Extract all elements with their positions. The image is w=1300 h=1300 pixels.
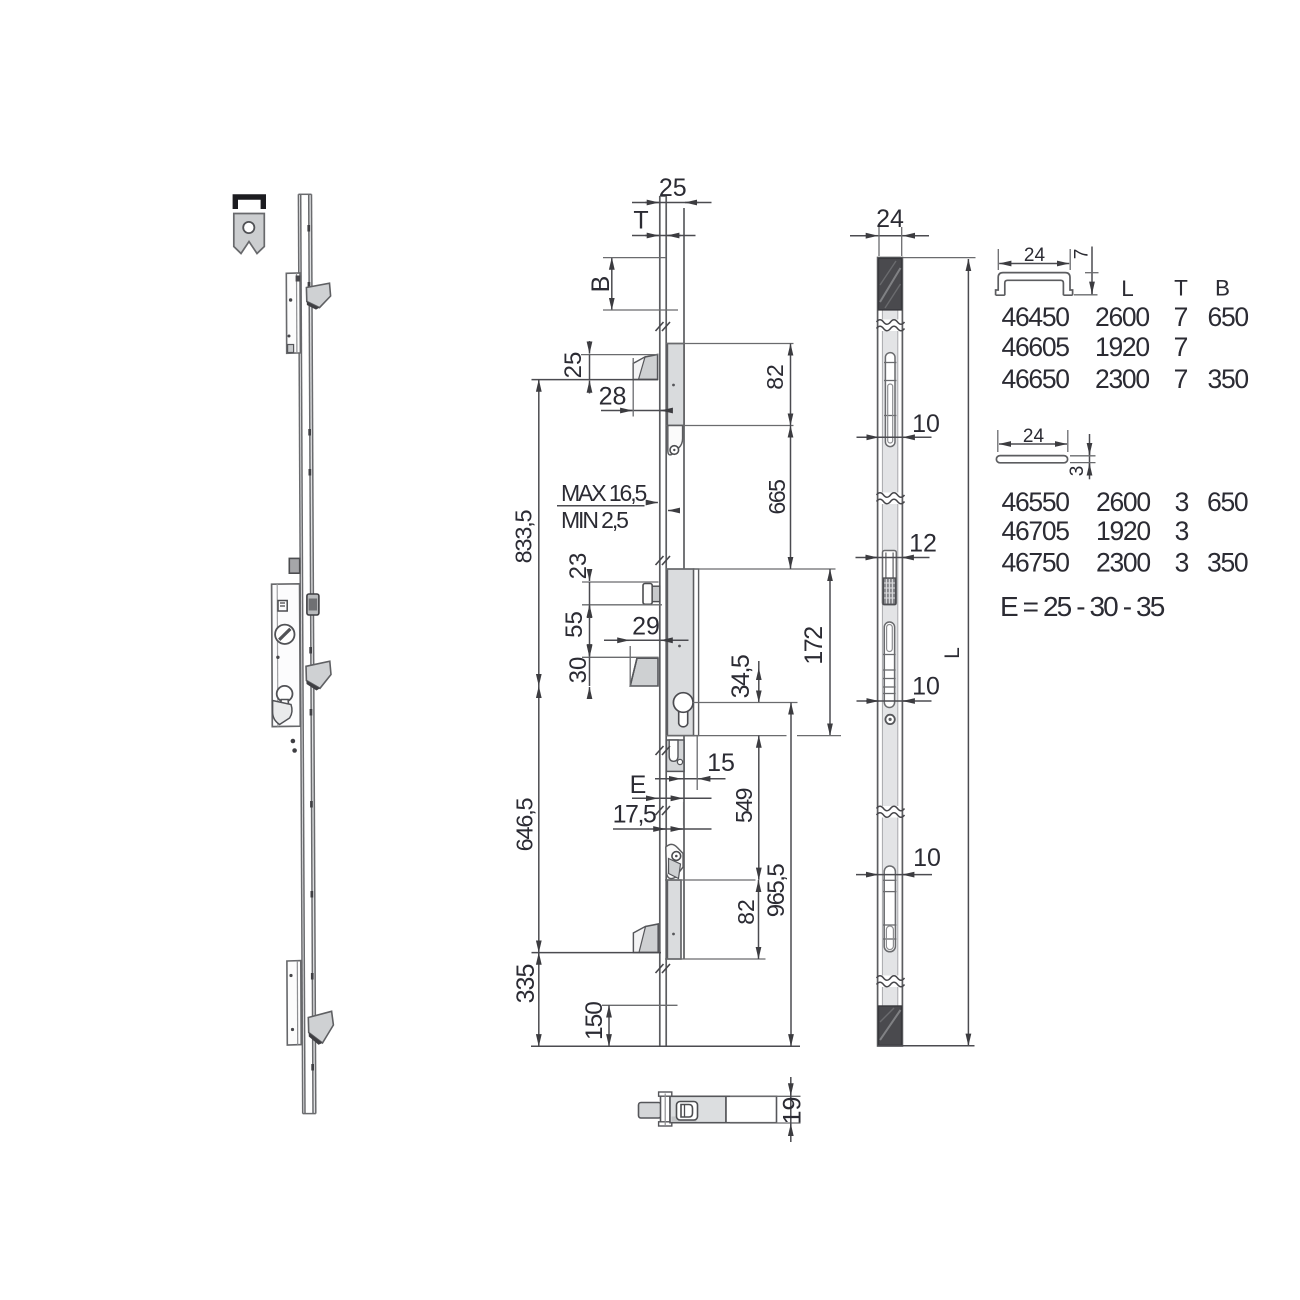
svg-text:965,5: 965,5	[763, 864, 790, 918]
svg-text:650: 650	[1207, 487, 1248, 517]
svg-text:46450: 46450	[1002, 302, 1070, 332]
svg-text:646,5: 646,5	[512, 797, 538, 851]
svg-text:549: 549	[731, 788, 757, 823]
svg-text:7: 7	[1174, 302, 1189, 332]
svg-text:82: 82	[762, 364, 788, 390]
svg-text:7: 7	[1174, 332, 1189, 362]
svg-text:46550: 46550	[1002, 487, 1070, 517]
svg-text:2600: 2600	[1095, 302, 1149, 332]
svg-text:150: 150	[581, 1002, 608, 1040]
svg-text:3: 3	[1175, 547, 1190, 577]
svg-text:172: 172	[800, 627, 828, 665]
svg-text:T: T	[633, 207, 648, 235]
svg-text:3: 3	[1067, 466, 1088, 477]
svg-text:46750: 46750	[1002, 547, 1070, 577]
svg-text:28: 28	[599, 383, 627, 411]
svg-text:25: 25	[560, 352, 587, 379]
svg-text:46605: 46605	[1002, 332, 1070, 362]
svg-text:10: 10	[912, 410, 940, 438]
svg-text:350: 350	[1207, 547, 1248, 577]
svg-text:335: 335	[512, 965, 540, 1004]
svg-text:2600: 2600	[1096, 487, 1150, 517]
svg-text:24: 24	[876, 205, 904, 233]
svg-text:25: 25	[659, 174, 687, 202]
svg-text:L: L	[941, 647, 964, 659]
svg-text:E: E	[630, 771, 647, 799]
svg-text:19: 19	[779, 1097, 807, 1125]
svg-text:10: 10	[913, 844, 941, 872]
svg-text:3: 3	[1175, 516, 1190, 546]
svg-text:833,5: 833,5	[511, 509, 537, 563]
svg-text:B: B	[587, 276, 615, 293]
svg-text:82: 82	[733, 899, 759, 925]
svg-text:665: 665	[764, 480, 790, 515]
svg-text:MIN 2,5: MIN 2,5	[561, 507, 628, 533]
svg-text:23: 23	[565, 553, 592, 580]
svg-text:2300: 2300	[1095, 364, 1149, 394]
svg-text:MAX 16,5: MAX 16,5	[561, 480, 647, 506]
svg-text:46705: 46705	[1002, 516, 1070, 546]
svg-text:T: T	[1174, 276, 1188, 301]
svg-text:46650: 46650	[1002, 364, 1070, 394]
svg-text:2300: 2300	[1096, 547, 1150, 577]
svg-text:350: 350	[1208, 364, 1249, 394]
svg-text:30: 30	[565, 657, 592, 684]
svg-text:34,5: 34,5	[727, 655, 755, 698]
svg-text:E = 25 - 30 - 35: E = 25 - 30 - 35	[1000, 591, 1165, 622]
svg-text:L: L	[1121, 276, 1134, 301]
svg-text:17,5: 17,5	[613, 801, 656, 829]
svg-text:1920: 1920	[1096, 516, 1150, 546]
svg-text:15: 15	[707, 749, 735, 777]
svg-text:10: 10	[912, 672, 940, 700]
svg-text:1920: 1920	[1095, 332, 1149, 362]
svg-text:B: B	[1215, 276, 1230, 301]
svg-text:55: 55	[561, 611, 588, 638]
svg-text:7: 7	[1072, 249, 1093, 260]
svg-text:3: 3	[1175, 487, 1190, 517]
svg-text:650: 650	[1208, 302, 1249, 332]
svg-text:7: 7	[1174, 364, 1189, 394]
svg-text:12: 12	[909, 530, 937, 558]
svg-text:29: 29	[632, 613, 660, 641]
